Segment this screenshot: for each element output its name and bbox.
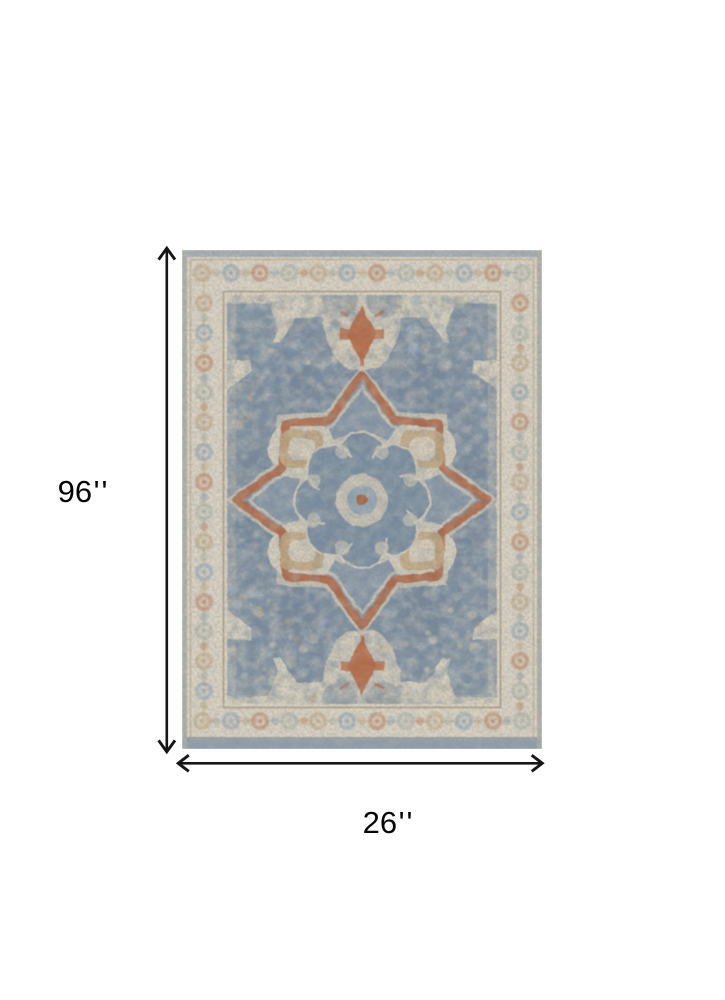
svg-text:96'': 96'' bbox=[58, 474, 108, 509]
svg-text:26'': 26'' bbox=[363, 805, 413, 840]
